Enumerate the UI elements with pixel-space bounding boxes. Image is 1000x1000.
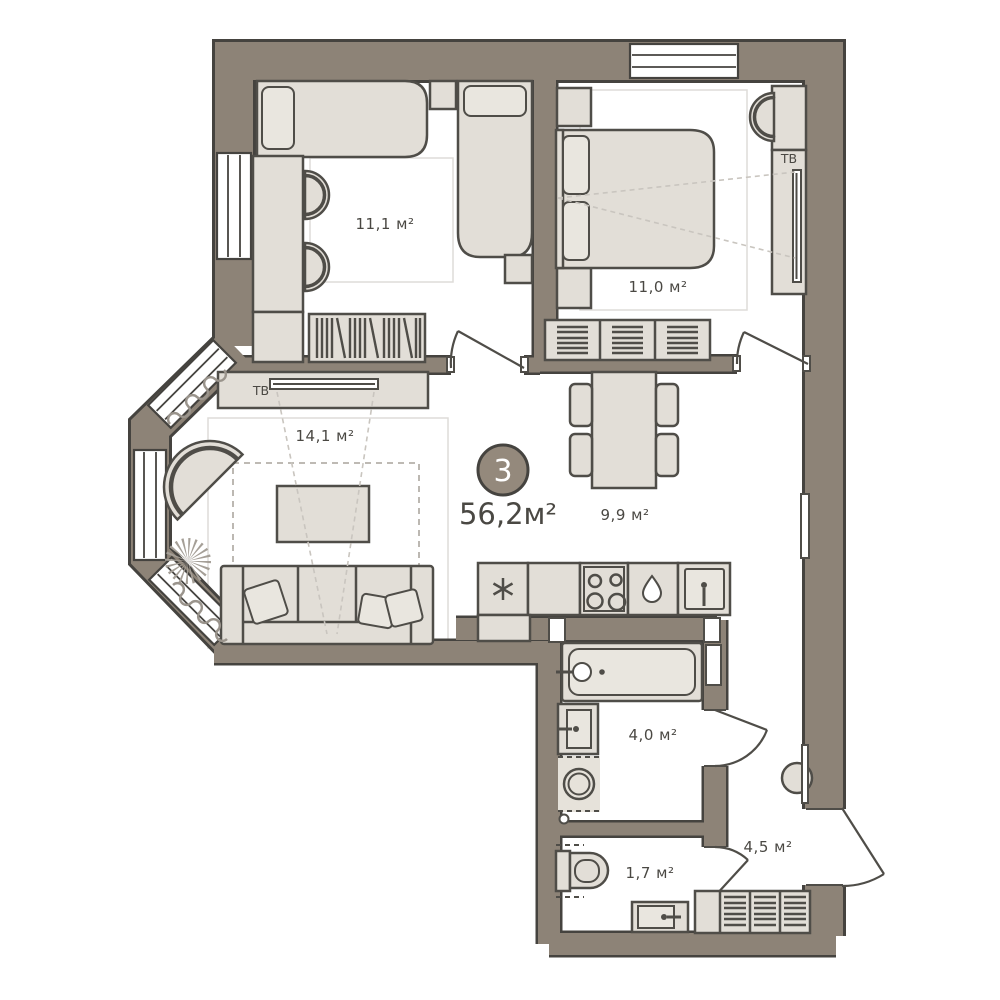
pillow bbox=[464, 86, 526, 116]
window-bedroom1-left bbox=[217, 153, 251, 259]
vanity-desk bbox=[772, 86, 806, 150]
tv-unit-bedroom bbox=[772, 150, 806, 294]
total-area-label: 56,2м² bbox=[459, 497, 557, 531]
wardrobe-bedroom2 bbox=[545, 320, 710, 360]
nightstand bbox=[557, 88, 591, 126]
bath-faucet-icon bbox=[573, 663, 591, 681]
pillow bbox=[563, 202, 589, 260]
drain-icon bbox=[599, 669, 605, 675]
nightstand bbox=[557, 268, 591, 308]
vent-duct bbox=[549, 618, 565, 642]
dining-table bbox=[592, 372, 656, 488]
cooktop bbox=[580, 563, 628, 615]
window-bay-middle bbox=[134, 450, 166, 560]
wc-sink bbox=[632, 902, 688, 932]
coffee-table bbox=[277, 486, 369, 542]
desk bbox=[253, 156, 303, 312]
nightstand bbox=[430, 81, 456, 109]
dining-chair bbox=[656, 384, 678, 426]
kitchen-lower-cabinet bbox=[478, 615, 530, 641]
kitchen-cabinet bbox=[528, 563, 580, 615]
faucet-icon bbox=[701, 582, 707, 588]
tv-label-bedroom: ТВ bbox=[780, 151, 797, 166]
faucet-icon bbox=[573, 726, 579, 732]
bookshelf bbox=[309, 314, 425, 362]
tv-label-living: ТВ bbox=[252, 383, 269, 398]
hall-mirror bbox=[802, 745, 808, 803]
bathtub bbox=[556, 643, 702, 701]
nightstand bbox=[505, 255, 532, 283]
dining-chair bbox=[570, 434, 592, 476]
room-area-label-bathroom: 4,0 м² bbox=[629, 726, 678, 744]
room-area-label-bedroom2: 11,0 м² bbox=[629, 278, 688, 296]
room-area-label-dining: 9,9 м² bbox=[601, 506, 650, 524]
room-area-label-living: 14,1 м² bbox=[296, 427, 355, 445]
floor-plan: 11,1 м² 11,0 м² 14,1 м² 9,9 м² 4,0 м² 1,… bbox=[0, 0, 1000, 1000]
room-area-label-hallway: 4,5 м² bbox=[744, 838, 793, 856]
dining-chair bbox=[570, 384, 592, 426]
hallway-wardrobe bbox=[695, 891, 810, 933]
radiator bbox=[801, 494, 809, 558]
pillow bbox=[563, 136, 589, 194]
dining-chair bbox=[656, 434, 678, 476]
room-area-label-bedroom1: 11,1 м² bbox=[356, 215, 415, 233]
boiler-niche bbox=[706, 645, 721, 685]
vent-duct bbox=[704, 618, 720, 642]
tv-console-living bbox=[218, 372, 428, 408]
pillow bbox=[262, 87, 294, 149]
cabinet bbox=[253, 312, 303, 362]
badge-number: 3 bbox=[493, 454, 512, 489]
faucet-icon bbox=[661, 914, 667, 920]
room-area-label-wc: 1,7 м² bbox=[626, 864, 675, 882]
sofa-pillow bbox=[385, 589, 424, 628]
floor-plan-page: 11,1 м² 11,0 м² 14,1 м² 9,9 м² 4,0 м² 1,… bbox=[0, 0, 1000, 1000]
window-bedroom2-top bbox=[630, 44, 738, 78]
bathroom-sink bbox=[558, 704, 598, 754]
sink-cabinet bbox=[628, 563, 678, 615]
kitchen-sink bbox=[678, 563, 730, 615]
